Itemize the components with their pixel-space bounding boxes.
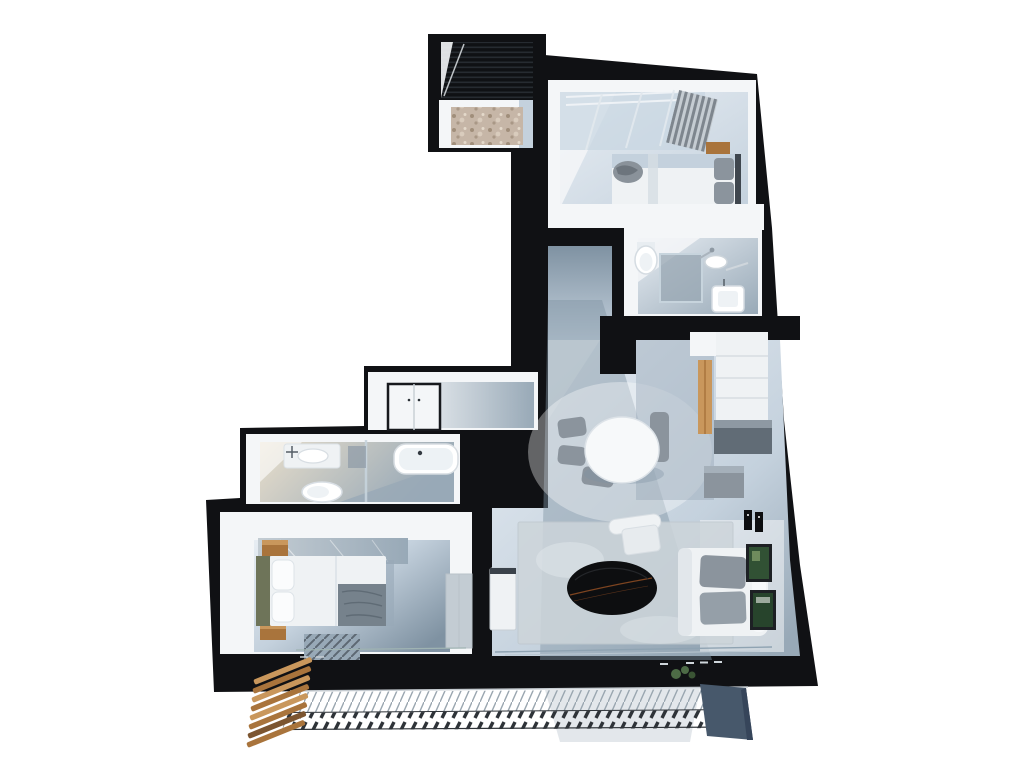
porch-pebble-floor xyxy=(451,107,523,145)
double-bed-top xyxy=(612,154,741,208)
floor-plan-svg xyxy=(0,0,1020,765)
bedroom-left xyxy=(220,512,472,660)
porch-roof-grille xyxy=(441,42,533,100)
double-bed-left xyxy=(256,556,394,626)
bathtub xyxy=(394,444,458,474)
nightstand-top xyxy=(706,142,730,154)
coffee-table xyxy=(567,561,657,615)
sink-left xyxy=(284,444,340,468)
duvet-fold xyxy=(648,154,658,208)
pillow xyxy=(714,182,734,204)
terrace-railing xyxy=(282,689,746,730)
bathroom-top xyxy=(624,228,762,318)
kitchen-counter xyxy=(690,332,768,434)
entry-porch xyxy=(428,34,546,152)
sideboard xyxy=(490,568,516,630)
pillow xyxy=(272,560,294,590)
l-wall-chunk xyxy=(600,316,636,374)
terrace-post xyxy=(700,684,753,740)
headboard-left xyxy=(256,556,270,626)
toilet-top xyxy=(635,242,657,274)
headboard-top xyxy=(735,154,741,208)
storage-room xyxy=(368,372,538,430)
bedroom-top xyxy=(548,80,764,246)
dining-table xyxy=(585,417,659,483)
bathroom-left xyxy=(246,434,460,504)
sofa-cushion xyxy=(699,591,746,625)
bedroom-rug xyxy=(304,634,360,660)
floor-plan-image xyxy=(0,0,1020,765)
pillow xyxy=(272,592,294,622)
round-basin xyxy=(705,256,727,269)
pillow xyxy=(714,158,734,180)
storage-cabinet xyxy=(388,384,440,430)
bedroom-bathroom-wall-face xyxy=(548,204,764,230)
toilet-left xyxy=(302,482,342,502)
sofa-cushion xyxy=(699,555,747,589)
bed-shadow xyxy=(386,560,394,626)
wall-segment xyxy=(548,228,624,246)
